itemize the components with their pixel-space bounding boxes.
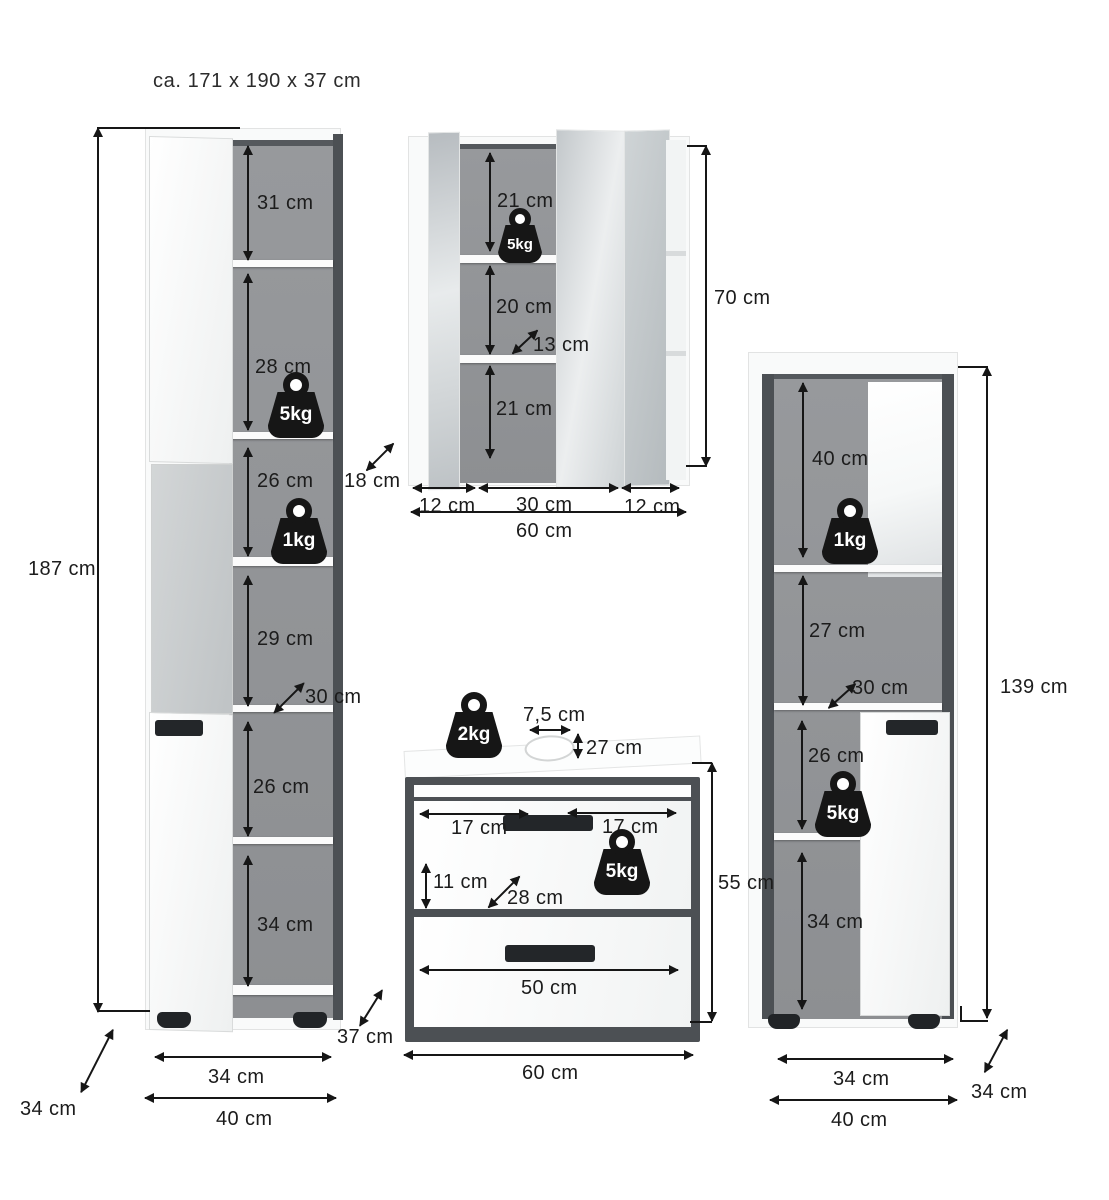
dim-label-mirror-inner-depth: 13 cm [533, 334, 589, 357]
dim-arrow-tall-width-inner [155, 1056, 331, 1058]
weight-icon-5kg-sink: 5kg [594, 829, 650, 895]
dim-label-sink-inner-depth: 28 cm [507, 887, 563, 910]
dim-label-side-width-outer: 40 cm [831, 1109, 887, 1132]
siphon-cutout [524, 734, 575, 763]
mirror-cabinet-side-shelves [666, 140, 686, 480]
dim-arrow-shelf-31 [247, 146, 249, 260]
dim-arrow-tall-height [97, 128, 99, 1012]
dim-label-shelf-26-top: 26 cm [257, 470, 313, 493]
dim-arrow-mirror-door-left [413, 487, 475, 489]
dim-leader [960, 1020, 988, 1022]
dim-arrow-side-shelf-34 [801, 853, 803, 1009]
dim-arrow-shelf-34 [247, 856, 249, 986]
weight-ring [283, 372, 309, 398]
tall-cabinet-glass-door [151, 464, 233, 714]
weight-icon-1kg: 1kg [271, 498, 327, 564]
weight-value: 5kg [498, 225, 542, 263]
dim-arrow-handle-right [568, 812, 676, 814]
dim-arrow-tall-depth-right [359, 990, 383, 1027]
tall-cabinet-bottom-door [149, 712, 233, 1032]
weight-value: 5kg [268, 392, 324, 438]
dim-leader [97, 1010, 150, 1012]
shelf [229, 260, 333, 267]
tall-cabinet-frame [333, 134, 343, 1020]
dim-label-side-shelf-40: 40 cm [812, 448, 868, 471]
dim-label-side-depth-inner: 30 cm [852, 677, 908, 700]
sink-cabinet-niche [414, 785, 691, 797]
weight-value: 5kg [815, 791, 871, 837]
dim-label-mirror-total-width: 60 cm [516, 520, 572, 543]
dim-label-side-shelf-34: 34 cm [807, 911, 863, 934]
dim-leader [690, 1021, 712, 1023]
dim-arrow-side-shelf-27 [802, 576, 804, 705]
dim-arrow-tall-depth-side [80, 1029, 114, 1092]
dim-label-sink-total-width: 60 cm [522, 1062, 578, 1085]
dim-arrow-shelf-26-bottom [247, 722, 249, 836]
weight-icon-5kg-side: 5kg [815, 771, 871, 837]
dim-arrow-sink-total-width [404, 1054, 693, 1056]
dim-label-mirror-door-center: 30 cm [516, 494, 572, 517]
dim-label-handle-left: 17 cm [451, 817, 507, 840]
dim-arrow-side-width-inner [778, 1058, 953, 1060]
dim-arrow-mirror-shelf-bottom [489, 366, 491, 458]
dim-label-depth-inner-tall: 30 cm [305, 686, 361, 709]
side-shelf-line [666, 251, 686, 256]
weight-ring [837, 498, 863, 524]
dim-leader [686, 465, 707, 467]
side-cabinet-frame-left [762, 374, 774, 1019]
dim-arrow-drawer-width [420, 969, 678, 971]
dim-arrow-side-height [986, 367, 988, 1018]
dim-leader [687, 145, 707, 147]
cabinet-foot [768, 1014, 800, 1029]
dim-label-mirror-side-depth: 18 cm [344, 470, 400, 493]
weight-ring [609, 829, 635, 855]
mirror-door-center [556, 129, 626, 488]
dim-arrow-side-shelf-40 [802, 383, 804, 557]
dim-label-mirror-height: 70 cm [714, 287, 770, 310]
dim-label-tall-height: 187 cm [28, 558, 96, 581]
dim-label-mirror-door-left: 12 cm [419, 495, 475, 518]
cabinet-foot [293, 1012, 327, 1028]
dim-label-hole-width: 7,5 cm [523, 704, 585, 727]
door-handle [886, 720, 938, 735]
set-dimensions-title: ca. 171 x 190 x 37 cm [153, 70, 361, 93]
dim-label-sink-height: 55 cm [718, 872, 774, 895]
dim-arrow-handle-left [420, 813, 528, 815]
mirror-door-left [428, 132, 460, 491]
weight-icon-5kg: 5kg [268, 372, 324, 438]
dim-leader [692, 762, 712, 764]
weight-value: 2kg [446, 712, 502, 758]
dim-label-shelf-31: 31 cm [257, 192, 313, 215]
dim-arrow-mirror-shelf-mid [489, 266, 491, 354]
dim-leader [958, 366, 988, 368]
dim-arrow-mirror-door-right [622, 487, 679, 489]
dim-label-tall-width-outer: 40 cm [216, 1108, 272, 1131]
dim-arrow-hole-offset [577, 734, 579, 758]
weight-value: 1kg [271, 518, 327, 564]
dim-arrow-sink-height [711, 763, 713, 1021]
dim-label-shelf-26-bottom: 26 cm [253, 776, 309, 799]
dim-label-hole-offset: 27 cm [586, 737, 642, 760]
weight-ring [830, 771, 856, 797]
dim-arrow-shelf-29 [247, 576, 249, 706]
dim-label-shelf-34: 34 cm [257, 914, 313, 937]
weight-ring [461, 692, 487, 718]
side-cabinet-door [860, 712, 950, 1016]
shelf [229, 837, 333, 844]
dim-label-mirror-shelf-bottom: 21 cm [496, 398, 552, 421]
mirror-door-center-fold [624, 129, 670, 486]
furniture-dimension-diagram: ca. 171 x 190 x 37 cm [0, 0, 1109, 1200]
sink-drawer-bottom [414, 917, 691, 1027]
dim-label-tall-width-inner: 34 cm [208, 1066, 264, 1089]
cabinet-foot [908, 1014, 940, 1029]
dim-arrow-mirror-door-center [479, 487, 618, 489]
dim-arrow-hole-width [530, 729, 570, 731]
drawer-handle [505, 945, 595, 962]
dim-label-tall-depth-side: 34 cm [20, 1098, 76, 1121]
dim-label-mirror-door-right: 12 cm [624, 496, 680, 519]
dim-label-tall-depth-right: 37 cm [337, 1026, 393, 1049]
dim-label-side-shelf-26: 26 cm [808, 745, 864, 768]
weight-icon-2kg: 2kg [446, 692, 502, 758]
shelf [774, 565, 942, 572]
cabinet-foot [157, 1012, 191, 1028]
dim-label-drawer-front: 11 cm [433, 871, 488, 894]
side-shelf-line [666, 351, 686, 356]
dim-label-drawer-width: 50 cm [521, 977, 577, 1000]
dim-arrow-mirror-total-width [411, 511, 686, 513]
dim-label-shelf-29: 29 cm [257, 628, 313, 651]
weight-value: 1kg [822, 518, 878, 564]
dim-arrow-mirror-side-depth [366, 443, 394, 471]
dim-arrow-side-width-outer [770, 1099, 957, 1101]
door-handle [155, 720, 203, 736]
dim-arrow-mirror-shelf-top [489, 153, 491, 251]
weight-icon-5kg-mirror: 5kg [498, 208, 542, 263]
drawer-handle [503, 815, 593, 831]
dim-arrow-tall-width-outer [145, 1097, 336, 1099]
side-cabinet-glass-reflection [868, 382, 942, 577]
dim-label-side-height: 139 cm [1000, 676, 1068, 699]
dim-label-side-depth: 34 cm [971, 1081, 1027, 1104]
dim-arrow-side-shelf-26 [801, 721, 803, 829]
weight-value: 5kg [594, 849, 650, 895]
dim-arrow-mirror-height [705, 146, 707, 466]
dim-label-mirror-shelf-mid: 20 cm [496, 296, 552, 319]
dim-label-side-shelf-27: 27 cm [809, 620, 865, 643]
dim-arrow-drawer-front [425, 864, 427, 908]
weight-icon-1kg-side: 1kg [822, 498, 878, 564]
dim-label-side-width-inner: 34 cm [833, 1068, 889, 1091]
dim-leader [97, 127, 240, 129]
tall-cabinet-top-door [149, 136, 233, 464]
dim-arrow-shelf-28 [247, 274, 249, 430]
dim-arrow-side-depth [984, 1029, 1008, 1072]
dim-arrow-shelf-26-top [247, 448, 249, 556]
weight-ring [509, 208, 531, 230]
weight-ring [286, 498, 312, 524]
